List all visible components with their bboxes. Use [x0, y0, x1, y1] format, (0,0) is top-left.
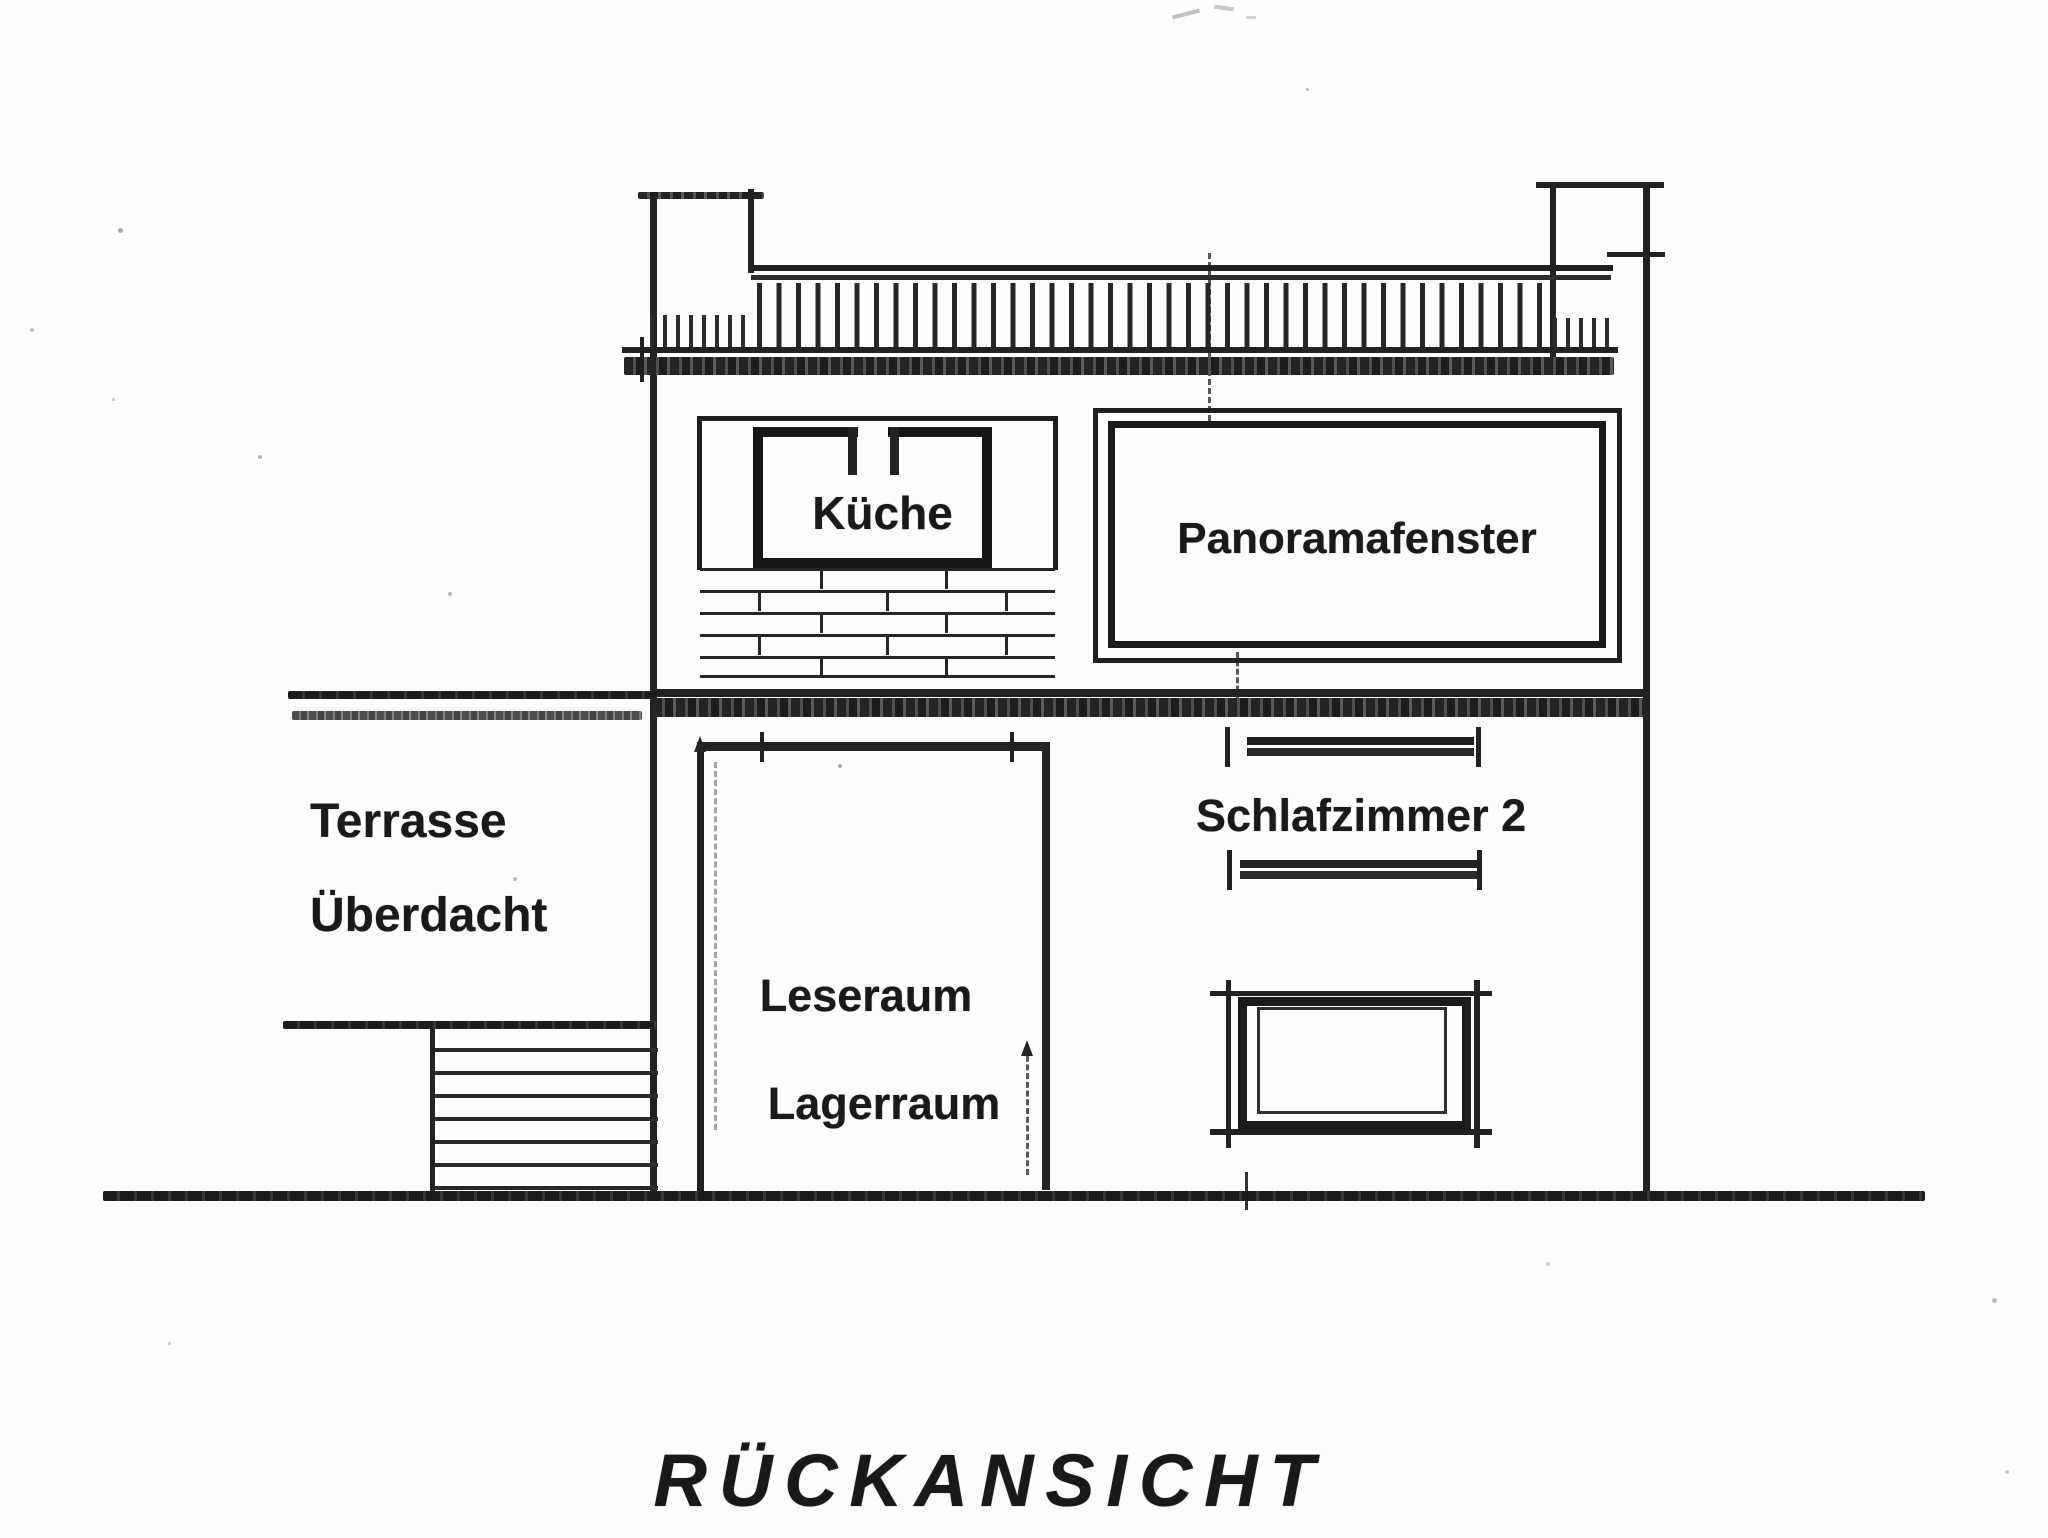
bedroom-slot-window-upper: [1247, 737, 1474, 756]
brick-joint: [945, 614, 948, 633]
brick-joint: [758, 636, 761, 655]
brick-joint: [886, 636, 889, 655]
bedroom-window-inner-frame: [1257, 1007, 1447, 1114]
terrace-label-line1: Terrasse: [310, 794, 507, 849]
scan-speck: [258, 455, 262, 459]
scan-scribble: [1214, 5, 1234, 12]
drawing-title: RÜCKANSICHT: [620, 1438, 1360, 1523]
scan-speck: [112, 398, 115, 401]
bedroom2-label: Schlafzimmer 2: [1196, 790, 1496, 842]
door-dimension-tick: [1010, 732, 1014, 762]
bedroom-slot-window-lower: [1240, 860, 1480, 879]
railing-balusters: [757, 283, 1552, 349]
brick-joint: [758, 592, 761, 611]
window-dimension-line: [1474, 980, 1480, 1148]
scan-speck: [1306, 88, 1309, 91]
terrace-platform-line: [283, 1021, 656, 1029]
scan-speck: [448, 592, 452, 596]
dimension-arrow: [1021, 1040, 1033, 1056]
ground-line: [103, 1191, 1925, 1201]
scan-speck: [1546, 1262, 1550, 1266]
scan-scribble: [1172, 9, 1200, 20]
slot-window-end-tick: [1225, 727, 1230, 767]
brick-joint: [1005, 592, 1008, 611]
kitchen-window-mullion: [848, 427, 857, 475]
slot-window-end-tick: [1477, 850, 1482, 890]
roof-slab-edge: [624, 357, 1614, 375]
stairs: [430, 1029, 658, 1195]
reading-room-label: Leseraum: [716, 970, 1016, 1022]
terrace-roof-line: [288, 691, 656, 699]
brick-joint: [945, 570, 948, 589]
storage-room-label: Lagerraum: [734, 1078, 1034, 1130]
brick-joint: [820, 614, 823, 633]
railing-top-rail: [751, 275, 1611, 280]
scan-scribble: [1246, 16, 1256, 19]
scan-speck: [118, 228, 123, 233]
brick-joint: [945, 658, 948, 677]
railing-top-rail: [751, 265, 1613, 271]
slot-window-end-tick: [1476, 727, 1481, 767]
right-roof-step-tick: [1607, 252, 1665, 257]
elevation-drawing-sheet: Küche Panoramafenster Terrasse Überdacht…: [0, 0, 2048, 1538]
kitchen-window-mullion: [890, 427, 899, 475]
floor-slab-edge: [653, 698, 1645, 717]
kitchen-window-mullion-gap: [858, 427, 888, 437]
basement-door-right-jamb: [1042, 743, 1050, 1190]
left-chimney-right-edge: [748, 189, 754, 273]
basement-door-left-jamb: [697, 742, 704, 1193]
scan-speck: [838, 764, 842, 768]
bedroom-window: [1238, 997, 1471, 1130]
railing-bottom-rail: [622, 347, 1618, 353]
dimension-arrow: [694, 736, 706, 752]
window-dimension-line: [1226, 980, 1231, 1148]
brick-joint: [820, 658, 823, 677]
window-dimension-line: [1210, 991, 1492, 996]
brick-sill: [700, 568, 1055, 678]
basement-door-top: [700, 742, 1050, 751]
terrace-roof-underside: [292, 711, 642, 720]
scan-speck: [30, 328, 34, 332]
scan-speck: [513, 877, 517, 881]
railing-balusters-left: [650, 315, 752, 350]
door-dimension-tick: [760, 732, 764, 762]
door-leaf-dashed-line: [714, 762, 717, 1130]
terrace-label-line2: Überdacht: [310, 888, 547, 943]
kitchen-label: Küche: [763, 486, 1002, 540]
scan-speck: [168, 1342, 171, 1345]
scan-speck: [1992, 1298, 1997, 1303]
floor-slab-line: [653, 689, 1645, 697]
panorama-window-label: Panoramafenster: [1108, 514, 1606, 564]
brick-joint: [1005, 636, 1008, 655]
brick-joint: [820, 570, 823, 589]
scan-speck: [2005, 1470, 2009, 1474]
slot-window-end-tick: [1227, 850, 1232, 890]
brick-joint: [886, 592, 889, 611]
